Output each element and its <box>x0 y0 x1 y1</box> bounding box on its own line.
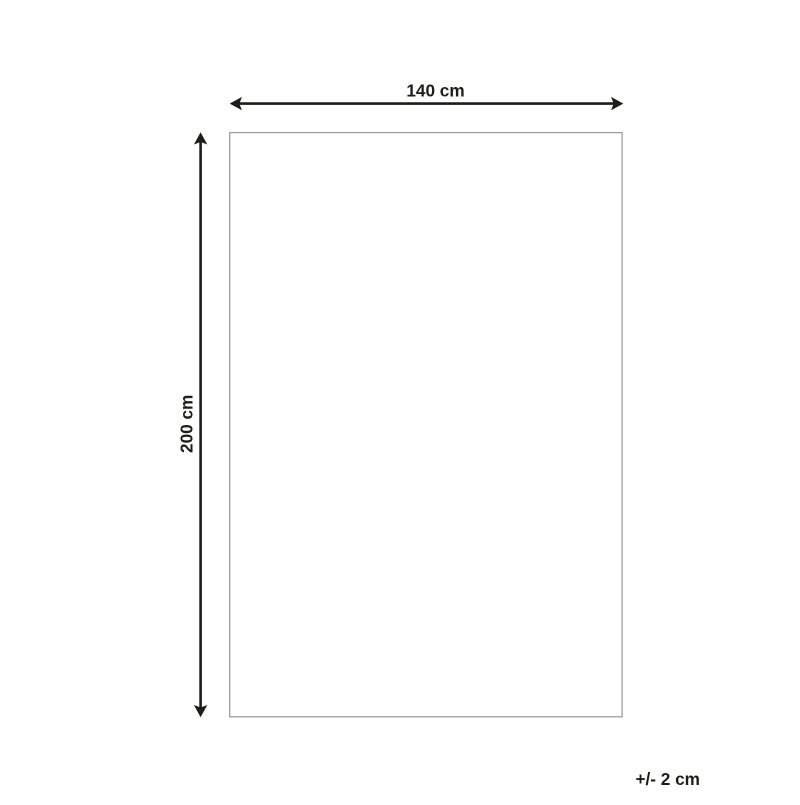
svg-text:+/- 2 cm: +/- 2 cm <box>635 769 700 789</box>
svg-text:200 cm: 200 cm <box>177 395 197 453</box>
svg-text:140 cm: 140 cm <box>406 81 464 101</box>
